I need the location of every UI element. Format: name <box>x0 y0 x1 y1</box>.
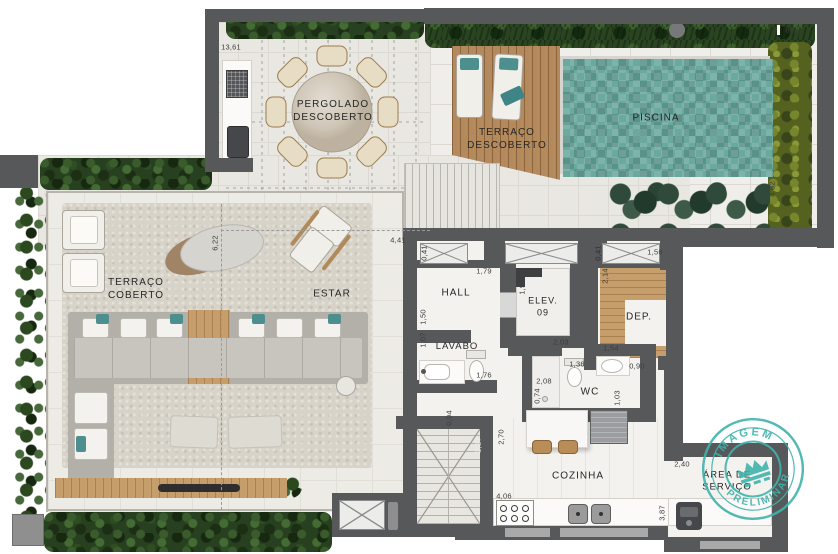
dim-label: 1,79 <box>476 267 491 275</box>
stool <box>532 440 552 454</box>
hedge-living-south <box>44 512 332 552</box>
dim-label: 2,27 <box>474 437 482 452</box>
wall <box>666 241 683 361</box>
floor-plan: PERGOLADO DESCOBERTO TERRAÇO DESCOBERTO … <box>0 0 838 554</box>
burner <box>522 505 529 512</box>
wall <box>205 9 431 22</box>
shower-drain <box>542 396 548 402</box>
room-label-estar: ESTAR <box>313 288 351 301</box>
outdoor-sink-icon <box>227 126 249 158</box>
sofa-pillow <box>252 314 265 324</box>
dim-label: 4,82 <box>768 181 776 196</box>
lavabo-sink <box>424 364 450 380</box>
grill-icon <box>226 70 248 98</box>
room-label-hall: HALL <box>441 287 470 300</box>
dim-label: 2,14 <box>601 268 609 283</box>
hedge-pool-right <box>768 42 812 238</box>
window-inset <box>560 528 648 537</box>
sofa-seats <box>74 338 362 378</box>
burner <box>500 515 507 522</box>
dim-label: 4,06 <box>496 492 511 500</box>
dim-label: 0,41 <box>420 245 428 260</box>
planter-box <box>12 514 44 546</box>
dim-label: 2,40 <box>674 460 689 468</box>
wall <box>676 228 834 247</box>
elevator-machine <box>516 268 542 277</box>
stove-icon <box>496 500 534 526</box>
dim-label: 6,22 <box>211 235 219 250</box>
preliminary-image-watermark: IMAGEM PRELIMINAR <box>692 408 814 530</box>
window-inset <box>700 541 760 549</box>
fridge-icon <box>590 410 628 444</box>
sofa-cushion <box>276 318 303 338</box>
wall <box>817 22 834 248</box>
living-west-glass-line <box>46 191 48 512</box>
dim-label: 1,54 <box>603 344 618 352</box>
wall <box>424 8 834 24</box>
sink-drain <box>599 512 603 516</box>
dim-label: 1,07 <box>419 332 427 347</box>
armchair <box>62 253 105 293</box>
dim-tick <box>777 25 780 35</box>
burner <box>522 515 529 522</box>
stool <box>558 440 578 454</box>
sofa-pillow <box>76 436 86 452</box>
svg-text:IMAGEM: IMAGEM <box>708 418 779 462</box>
exterior-stairs <box>404 163 500 236</box>
room-label-terraco-coberto: TERRAÇO COBERTO <box>108 276 164 302</box>
burner <box>500 505 507 512</box>
window-inset <box>505 528 550 537</box>
armchair <box>62 210 105 250</box>
pouf <box>227 415 282 449</box>
burner <box>511 505 518 512</box>
watermark-text-top: IMAGEM <box>708 418 779 462</box>
armchair-cushion <box>70 216 98 244</box>
dim-label: 8,98 <box>785 26 800 34</box>
sun-lounger <box>456 54 483 118</box>
toilet-bowl <box>567 367 582 387</box>
dim-label: 2,08 <box>536 377 551 385</box>
lounger-pillow <box>499 58 519 71</box>
sofa-pillow <box>328 314 341 324</box>
duct-slot <box>388 502 398 530</box>
room-label-piscina: PISCINA <box>632 112 679 125</box>
dim-label: 2,03 <box>553 338 568 346</box>
room-label-terraco-descoberto: TERRAÇO DESCOBERTO <box>467 126 547 152</box>
armchair-cushion <box>70 259 98 287</box>
pouf <box>169 415 218 449</box>
dim-label: 1,56 <box>647 248 662 256</box>
coffee-table-icon <box>158 218 278 284</box>
dim-label: 0,41 <box>594 245 602 260</box>
sideboard-tray <box>158 484 240 492</box>
wall <box>403 228 683 241</box>
sofa-pillow <box>96 314 109 324</box>
hedge-west <box>14 185 46 516</box>
burner <box>511 515 518 522</box>
dim-label: 3,87 <box>658 505 666 520</box>
dim-label: 0,74 <box>533 388 541 403</box>
sun-lounger <box>491 53 523 120</box>
room-label-cozinha: COZINHA <box>552 470 604 483</box>
dim-label: 0,90 <box>629 362 644 370</box>
room-label-deposito: DEP. <box>626 311 652 324</box>
lounger-pillow <box>460 58 479 70</box>
faucet-icon <box>421 369 426 374</box>
room-label-wc: WC <box>581 386 600 399</box>
dim-label: 13,61 <box>221 43 241 51</box>
duct-shaft <box>505 243 578 264</box>
room-label-lavabo: LAVABO <box>436 341 479 353</box>
sink-drain <box>576 512 580 516</box>
dimension-line <box>221 204 222 510</box>
living-south-glass-line <box>46 509 346 511</box>
duct-shaft <box>339 500 385 530</box>
double-sink-icon <box>568 504 612 525</box>
wc-sink <box>601 359 623 373</box>
sofa-cushion <box>74 392 108 424</box>
dim-label: 1,50 <box>419 309 427 324</box>
elevator-door <box>500 292 516 318</box>
interior-stairs <box>417 429 480 524</box>
sofa-pillow <box>170 314 183 324</box>
wall <box>205 158 253 172</box>
dim-label: 1,76 <box>476 371 491 379</box>
dim-label: 1,36 <box>569 360 584 368</box>
room-label-elevador: ELEV. 09 <box>528 295 558 318</box>
dim-label: 1,03 <box>613 390 621 405</box>
hedge-living-north <box>40 158 212 190</box>
wall <box>205 22 219 172</box>
crown-icon <box>736 457 772 489</box>
dim-label: 1,97 <box>518 279 526 294</box>
column-dot <box>669 22 685 38</box>
dimension-line <box>221 230 430 231</box>
side-table <box>336 376 356 396</box>
wall <box>0 155 38 188</box>
dim-label: 4,41 <box>390 236 405 244</box>
sofa-cushion <box>120 318 147 338</box>
dim-label: 2,70 <box>497 429 505 444</box>
room-label-pergolado: PERGOLADO DESCOBERTO <box>293 98 373 124</box>
dim-label: 0,94 <box>445 410 453 425</box>
